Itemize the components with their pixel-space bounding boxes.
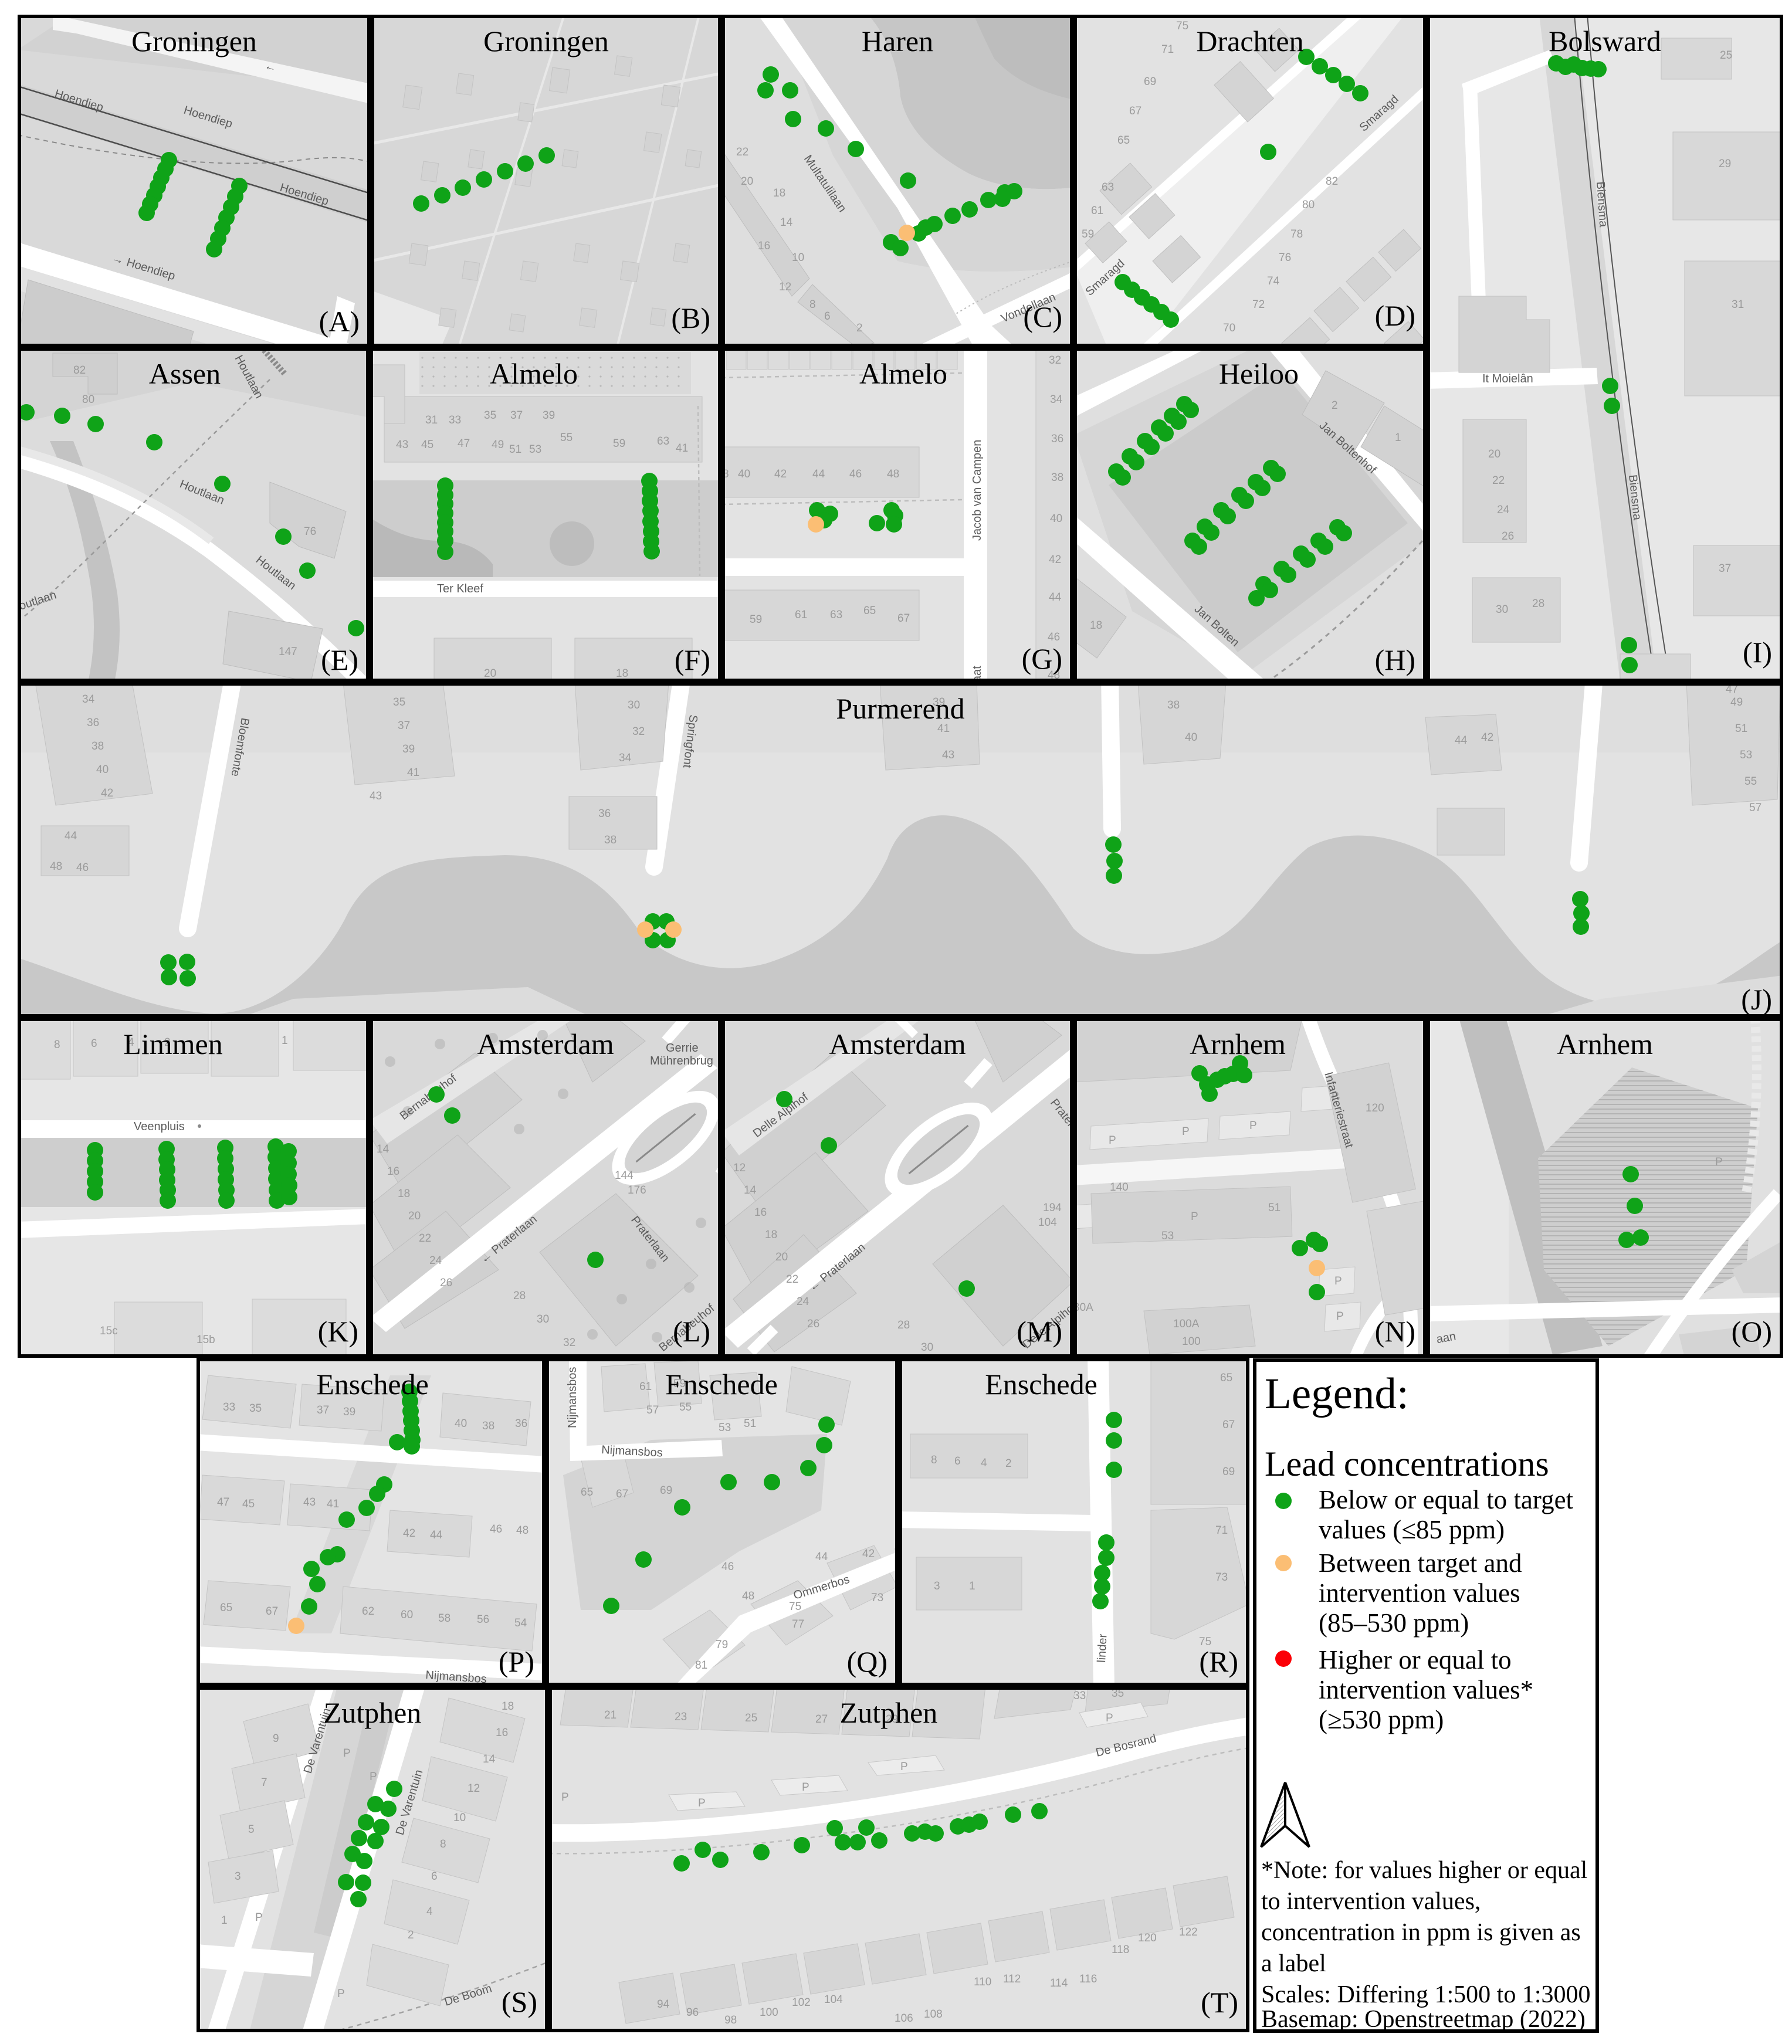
svg-text:40: 40 (1185, 731, 1197, 744)
svg-text:77: 77 (792, 1618, 804, 1631)
svg-text:37: 37 (1719, 562, 1731, 575)
svg-text:51: 51 (744, 1418, 756, 1430)
svg-text:49: 49 (1730, 696, 1743, 709)
svg-text:67: 67 (1129, 105, 1141, 117)
svg-text:Amsterdam: Amsterdam (829, 1028, 966, 1060)
svg-text:41: 41 (327, 1498, 339, 1510)
svg-text:57: 57 (646, 1404, 659, 1416)
svg-text:12: 12 (779, 281, 791, 293)
svg-text:31: 31 (1732, 299, 1744, 311)
svg-text:Zutphen: Zutphen (840, 1696, 938, 1729)
svg-text:94: 94 (657, 1998, 670, 2011)
svg-text:14: 14 (780, 216, 793, 229)
svg-text:P: P (343, 1747, 351, 1760)
svg-text:27: 27 (815, 1713, 828, 1726)
svg-text:(F): (F) (675, 643, 710, 676)
svg-text:26: 26 (807, 1318, 819, 1330)
svg-text:4: 4 (426, 1906, 433, 1918)
svg-text:46: 46 (1048, 631, 1060, 643)
svg-text:61: 61 (795, 609, 807, 621)
svg-text:61: 61 (639, 1381, 652, 1393)
svg-text:25: 25 (745, 1712, 757, 1724)
svg-text:(I): (I) (1743, 636, 1772, 669)
svg-text:100: 100 (760, 2006, 778, 2019)
svg-text:147: 147 (279, 646, 297, 658)
svg-text:Groningen: Groningen (483, 25, 609, 57)
svg-text:(G): (G) (1022, 642, 1062, 675)
svg-text:38: 38 (1051, 472, 1063, 484)
svg-text:59: 59 (613, 438, 625, 450)
svg-text:P: P (1249, 1120, 1257, 1132)
svg-text:(O): (O) (1732, 1315, 1772, 1348)
svg-text:122: 122 (1179, 1926, 1198, 1938)
svg-text:(R): (R) (1199, 1645, 1238, 1678)
svg-text:P: P (900, 1761, 908, 1773)
svg-text:102: 102 (792, 1996, 811, 2009)
svg-text:114: 114 (1050, 1977, 1068, 1989)
svg-text:20: 20 (741, 175, 753, 188)
svg-text:35: 35 (249, 1402, 262, 1415)
svg-text:P: P (370, 1771, 377, 1783)
svg-text:32: 32 (632, 726, 645, 738)
svg-text:26: 26 (1502, 530, 1514, 543)
svg-text:47: 47 (217, 1496, 229, 1509)
svg-text:33: 33 (449, 414, 461, 426)
svg-text:44: 44 (815, 1551, 828, 1563)
svg-text:(Q): (Q) (847, 1645, 887, 1678)
svg-text:Gerrie: Gerrie (666, 1042, 699, 1055)
svg-text:Limmen: Limmen (123, 1028, 222, 1060)
svg-text:8: 8 (809, 299, 816, 311)
svg-text:1: 1 (1395, 432, 1401, 444)
svg-text:18: 18 (765, 1229, 777, 1241)
svg-text:48: 48 (742, 1590, 754, 1602)
svg-text:18: 18 (1090, 619, 1102, 632)
svg-text:Enschede: Enschede (985, 1368, 1097, 1401)
svg-text:7: 7 (261, 1777, 267, 1789)
svg-text:20: 20 (484, 667, 496, 680)
svg-text:16: 16 (754, 1206, 767, 1219)
svg-text:44: 44 (1455, 734, 1468, 747)
svg-text:37: 37 (510, 409, 523, 422)
svg-text:75: 75 (1176, 20, 1188, 32)
svg-text:40: 40 (96, 764, 109, 776)
svg-text:P: P (561, 1791, 569, 1804)
svg-text:80: 80 (82, 394, 94, 406)
svg-text:Drachten: Drachten (1196, 25, 1303, 57)
svg-text:104: 104 (1038, 1216, 1057, 1229)
svg-text:(85–530 ppm): (85–530 ppm) (1319, 1608, 1469, 1638)
svg-text:45: 45 (421, 439, 433, 451)
svg-text:28: 28 (513, 1290, 526, 1302)
svg-text:120: 120 (1138, 1932, 1157, 1944)
svg-text:(L): (L) (673, 1315, 710, 1348)
svg-text:16: 16 (496, 1727, 508, 1739)
svg-text:(N): (N) (1375, 1315, 1415, 1348)
svg-text:31: 31 (425, 414, 438, 426)
svg-text:46: 46 (849, 468, 862, 480)
svg-text:(P): (P) (499, 1645, 534, 1678)
svg-text:20: 20 (408, 1210, 421, 1222)
svg-text:20: 20 (1488, 448, 1500, 460)
svg-text:(E): (E) (321, 643, 358, 676)
svg-text:Almelo: Almelo (490, 357, 578, 390)
svg-text:110: 110 (974, 1976, 991, 1988)
svg-text:10: 10 (453, 1812, 466, 1824)
svg-text:Scales: Differing 1:500 to 1:3: Scales: Differing 1:500 to 1:3000 (1261, 1981, 1590, 2008)
svg-text:24: 24 (429, 1255, 442, 1267)
svg-text:35: 35 (484, 409, 496, 422)
svg-text:71: 71 (1215, 1524, 1228, 1537)
svg-text:Basemap: Openstreetmap (2022): Basemap: Openstreetmap (2022) (1261, 2006, 1586, 2033)
svg-text:104: 104 (824, 1994, 843, 2006)
svg-text:42: 42 (862, 1548, 875, 1560)
svg-text:25: 25 (1720, 49, 1732, 62)
svg-text:44: 44 (812, 468, 825, 480)
svg-text:Arnhem: Arnhem (1557, 1028, 1653, 1060)
svg-text:118: 118 (1112, 1944, 1129, 1956)
svg-text:65: 65 (581, 1486, 593, 1499)
svg-text:176: 176 (628, 1184, 646, 1196)
svg-text:15c: 15c (100, 1325, 118, 1337)
svg-text:65: 65 (1220, 1372, 1232, 1384)
svg-text:82: 82 (1326, 175, 1338, 188)
svg-text:Lead concentrations: Lead concentrations (1265, 1445, 1549, 1483)
svg-text:(S): (S) (502, 1985, 537, 2018)
svg-text:(C): (C) (1023, 300, 1062, 333)
svg-text:3: 3 (235, 1870, 241, 1883)
svg-text:18: 18 (398, 1188, 410, 1200)
svg-text:41: 41 (407, 767, 419, 779)
svg-text:43: 43 (396, 439, 408, 451)
svg-text:59: 59 (750, 613, 762, 626)
svg-text:65: 65 (1117, 134, 1130, 147)
svg-text:116: 116 (1079, 1973, 1097, 1985)
svg-text:6: 6 (824, 310, 831, 323)
svg-text:81: 81 (695, 1659, 707, 1672)
svg-text:Higher or equal to: Higher or equal to (1319, 1645, 1512, 1674)
svg-text:32: 32 (1049, 354, 1061, 367)
svg-text:59: 59 (1082, 228, 1094, 240)
svg-text:16: 16 (758, 240, 770, 252)
svg-text:38: 38 (92, 740, 104, 752)
svg-text:34: 34 (1050, 394, 1063, 406)
svg-text:120: 120 (1366, 1102, 1384, 1114)
svg-text:1: 1 (221, 1914, 228, 1927)
svg-text:106: 106 (895, 2012, 913, 2025)
svg-text:82: 82 (73, 364, 86, 377)
svg-text:P: P (1182, 1126, 1190, 1138)
svg-text:36: 36 (1051, 433, 1063, 445)
svg-text:55: 55 (679, 1401, 692, 1413)
svg-text:42: 42 (1049, 554, 1061, 566)
svg-text:18: 18 (502, 1700, 514, 1713)
svg-text:46: 46 (76, 862, 89, 874)
svg-text:P: P (1715, 1156, 1723, 1168)
svg-text:Amsterdam: Amsterdam (477, 1028, 614, 1060)
svg-text:Purmerend: Purmerend (836, 692, 964, 725)
svg-text:P: P (255, 1911, 263, 1924)
svg-text:Below or equal to target: Below or equal to target (1319, 1485, 1574, 1514)
svg-text:40: 40 (738, 468, 750, 480)
svg-text:140: 140 (1110, 1181, 1129, 1194)
svg-text:14: 14 (483, 1753, 496, 1765)
svg-text:69: 69 (1222, 1466, 1235, 1478)
svg-text:48: 48 (887, 468, 899, 480)
svg-text:144: 144 (615, 1170, 634, 1182)
svg-text:P: P (802, 1781, 809, 1794)
svg-text:2: 2 (1332, 399, 1338, 412)
svg-text:Zutphen: Zutphen (324, 1696, 422, 1729)
svg-text:48: 48 (516, 1524, 529, 1537)
svg-text:22: 22 (736, 146, 748, 158)
svg-text:30: 30 (921, 1341, 933, 1354)
svg-text:32: 32 (563, 1337, 575, 1349)
svg-text:28: 28 (897, 1319, 910, 1331)
svg-text:2: 2 (1005, 1457, 1012, 1470)
svg-text:2: 2 (408, 1929, 414, 1941)
svg-text:62: 62 (362, 1605, 374, 1618)
svg-text:(K): (K) (318, 1315, 358, 1348)
svg-text:51: 51 (1268, 1202, 1281, 1214)
svg-text:12: 12 (468, 1782, 480, 1795)
svg-text:22: 22 (786, 1273, 798, 1286)
svg-text:42: 42 (774, 468, 787, 480)
svg-text:55: 55 (1744, 775, 1757, 788)
svg-text:40: 40 (455, 1418, 467, 1430)
svg-text:22: 22 (419, 1232, 431, 1245)
svg-text:to intervention values,: to intervention values, (1261, 1888, 1481, 1915)
svg-text:65: 65 (220, 1602, 232, 1614)
svg-text:9: 9 (273, 1733, 279, 1745)
svg-text:24: 24 (1497, 504, 1510, 516)
svg-text:98: 98 (724, 2014, 737, 2026)
svg-text:100: 100 (1182, 1335, 1201, 1348)
svg-text:51: 51 (1735, 723, 1747, 735)
svg-text:60: 60 (401, 1609, 413, 1621)
svg-text:33: 33 (223, 1401, 235, 1413)
svg-text:79: 79 (716, 1639, 728, 1651)
svg-text:Between target and: Between target and (1319, 1548, 1522, 1578)
svg-text:108: 108 (924, 2008, 943, 2021)
svg-text:(D): (D) (1375, 299, 1415, 332)
svg-text:46: 46 (490, 1523, 502, 1535)
svg-text:16: 16 (387, 1165, 399, 1178)
svg-text:5: 5 (248, 1823, 255, 1836)
svg-text:37: 37 (317, 1404, 329, 1416)
svg-text:It Moielân: It Moielân (1482, 372, 1533, 385)
svg-text:45: 45 (242, 1498, 255, 1510)
svg-text:65: 65 (863, 605, 876, 617)
svg-text:1: 1 (969, 1580, 975, 1592)
svg-text:18: 18 (616, 667, 628, 680)
svg-text:P: P (1191, 1211, 1198, 1223)
svg-text:Heiloo: Heiloo (1219, 357, 1299, 390)
svg-text:P: P (1109, 1134, 1116, 1147)
svg-text:P: P (1336, 1310, 1344, 1323)
svg-text:23: 23 (675, 1711, 687, 1723)
svg-text:73: 73 (1215, 1571, 1228, 1584)
svg-text:67: 67 (897, 612, 910, 625)
svg-text:P: P (337, 1988, 345, 2000)
svg-text:36: 36 (87, 717, 99, 729)
svg-text:67: 67 (266, 1605, 278, 1618)
svg-text:44: 44 (430, 1529, 443, 1541)
svg-text:Ter Kleef: Ter Kleef (437, 582, 483, 595)
svg-text:73: 73 (871, 1592, 883, 1604)
svg-text:49: 49 (492, 439, 504, 451)
svg-text:56: 56 (477, 1613, 489, 1626)
svg-text:intervention values*: intervention values* (1319, 1675, 1533, 1704)
svg-text:42: 42 (1481, 731, 1493, 744)
svg-text:Enschede: Enschede (316, 1368, 429, 1401)
svg-text:71: 71 (1161, 43, 1174, 56)
svg-text:34: 34 (619, 752, 632, 764)
svg-text:78: 78 (1290, 228, 1303, 240)
svg-text:Almelo: Almelo (859, 357, 947, 390)
svg-text:38: 38 (482, 1420, 494, 1432)
svg-text:43: 43 (303, 1496, 316, 1509)
svg-text:42: 42 (403, 1527, 415, 1540)
svg-text:28: 28 (1532, 598, 1544, 610)
svg-text:76: 76 (1279, 252, 1291, 264)
svg-text:53: 53 (1740, 749, 1752, 761)
svg-text:2: 2 (856, 322, 863, 334)
svg-text:29: 29 (1719, 158, 1731, 170)
svg-text:4: 4 (981, 1457, 987, 1469)
svg-text:63: 63 (657, 435, 669, 448)
svg-text:1: 1 (282, 1035, 288, 1047)
svg-text:(≥530 ppm): (≥530 ppm) (1319, 1705, 1444, 1734)
svg-text:21: 21 (604, 1709, 616, 1721)
svg-text:10: 10 (792, 252, 804, 264)
svg-text:74: 74 (1267, 275, 1280, 287)
svg-text:39: 39 (543, 409, 555, 422)
svg-text:41: 41 (676, 442, 688, 455)
svg-text:44: 44 (65, 830, 77, 842)
svg-text:38: 38 (604, 834, 616, 846)
svg-text:194: 194 (1043, 1202, 1062, 1214)
svg-text:6: 6 (954, 1455, 961, 1467)
svg-text:35: 35 (393, 696, 405, 709)
svg-text:(B): (B) (671, 301, 710, 334)
svg-text:40: 40 (1050, 513, 1062, 525)
svg-text:3: 3 (934, 1580, 940, 1592)
svg-text:80: 80 (1302, 199, 1315, 211)
svg-text:Legend:: Legend: (1265, 1370, 1409, 1418)
svg-text:(J): (J) (1741, 983, 1772, 1016)
svg-text:Enschede: Enschede (665, 1368, 778, 1401)
svg-text:6: 6 (431, 1870, 438, 1883)
svg-text:values (≤85 ppm): values (≤85 ppm) (1319, 1515, 1505, 1544)
svg-text:72: 72 (1252, 299, 1265, 311)
svg-text:8: 8 (440, 1838, 446, 1850)
svg-text:Groningen: Groningen (131, 25, 257, 57)
svg-text:46: 46 (721, 1561, 734, 1573)
svg-text:(M): (M) (1017, 1315, 1062, 1348)
svg-text:intervention values: intervention values (1319, 1578, 1520, 1608)
svg-text:Mührenbrug: Mührenbrug (650, 1055, 713, 1067)
svg-text:34: 34 (82, 693, 95, 706)
svg-text:30: 30 (628, 699, 640, 711)
svg-text:15b: 15b (197, 1334, 215, 1346)
svg-text:36: 36 (598, 808, 611, 820)
svg-text:55: 55 (560, 432, 573, 444)
svg-text:54: 54 (514, 1617, 527, 1629)
svg-text:69: 69 (660, 1484, 672, 1497)
svg-text:75: 75 (789, 1601, 801, 1613)
svg-text:33: 33 (1073, 1690, 1086, 1702)
svg-text:51: 51 (509, 443, 521, 456)
svg-text:12: 12 (733, 1162, 746, 1174)
svg-text:53: 53 (1161, 1230, 1174, 1242)
svg-text:linder: linder (1095, 1633, 1110, 1663)
svg-text:Veenpluis: Veenpluis (134, 1120, 185, 1133)
svg-text:concentration in ppm is given: concentration in ppm is given as (1261, 1919, 1581, 1946)
svg-text:P: P (1106, 1712, 1113, 1724)
svg-text:(T): (T) (1201, 1986, 1238, 2019)
svg-text:22: 22 (1492, 474, 1505, 487)
svg-text:Jacob van Campen: Jacob van Campen (971, 440, 984, 541)
svg-text:39: 39 (402, 743, 415, 755)
svg-text:26: 26 (440, 1277, 452, 1289)
svg-text:8: 8 (931, 1454, 937, 1466)
svg-text:48: 48 (50, 860, 62, 873)
svg-text:63: 63 (830, 609, 842, 621)
svg-text:63: 63 (1102, 181, 1114, 194)
svg-text:57: 57 (1749, 802, 1761, 814)
svg-text:53: 53 (719, 1422, 731, 1434)
svg-text:42: 42 (101, 787, 113, 799)
svg-text:Arnhem: Arnhem (1190, 1028, 1286, 1060)
svg-text:14: 14 (744, 1184, 757, 1196)
svg-text:30: 30 (537, 1313, 549, 1326)
svg-text:43: 43 (942, 749, 954, 761)
svg-text:44: 44 (1049, 591, 1062, 604)
svg-text:70: 70 (1223, 322, 1235, 334)
svg-text:P: P (1334, 1275, 1342, 1287)
svg-text:(A): (A) (319, 305, 360, 338)
svg-text:Bolsward: Bolsward (1549, 25, 1661, 57)
svg-text:69: 69 (1144, 76, 1156, 88)
svg-text:61: 61 (1091, 205, 1103, 217)
svg-text:Nijmansbos: Nijmansbos (566, 1367, 579, 1428)
svg-text:37: 37 (398, 720, 410, 732)
svg-text:20: 20 (775, 1251, 788, 1263)
svg-text:P: P (698, 1797, 706, 1809)
svg-text:8: 8 (54, 1039, 60, 1051)
svg-text:76: 76 (304, 526, 316, 538)
svg-text:58: 58 (438, 1612, 450, 1625)
svg-text:14: 14 (377, 1143, 389, 1155)
svg-text:a label: a label (1261, 1950, 1326, 1977)
svg-text:38: 38 (1167, 699, 1180, 711)
svg-text:24: 24 (797, 1296, 809, 1308)
svg-text:*Note: for values higher or eq: *Note: for values higher or equal (1261, 1857, 1587, 1884)
svg-text:43: 43 (370, 790, 382, 802)
svg-text:100A: 100A (1173, 1318, 1200, 1330)
svg-text:Assen: Assen (149, 357, 221, 390)
svg-text:Haren: Haren (862, 25, 933, 57)
svg-text:18: 18 (773, 187, 785, 199)
svg-text:67: 67 (1222, 1419, 1235, 1431)
svg-text:30: 30 (1496, 604, 1508, 616)
svg-text:53: 53 (529, 443, 541, 456)
svg-text:67: 67 (616, 1488, 628, 1500)
svg-text:6: 6 (91, 1038, 97, 1050)
svg-text:36: 36 (515, 1418, 527, 1430)
svg-text:47: 47 (458, 438, 470, 450)
